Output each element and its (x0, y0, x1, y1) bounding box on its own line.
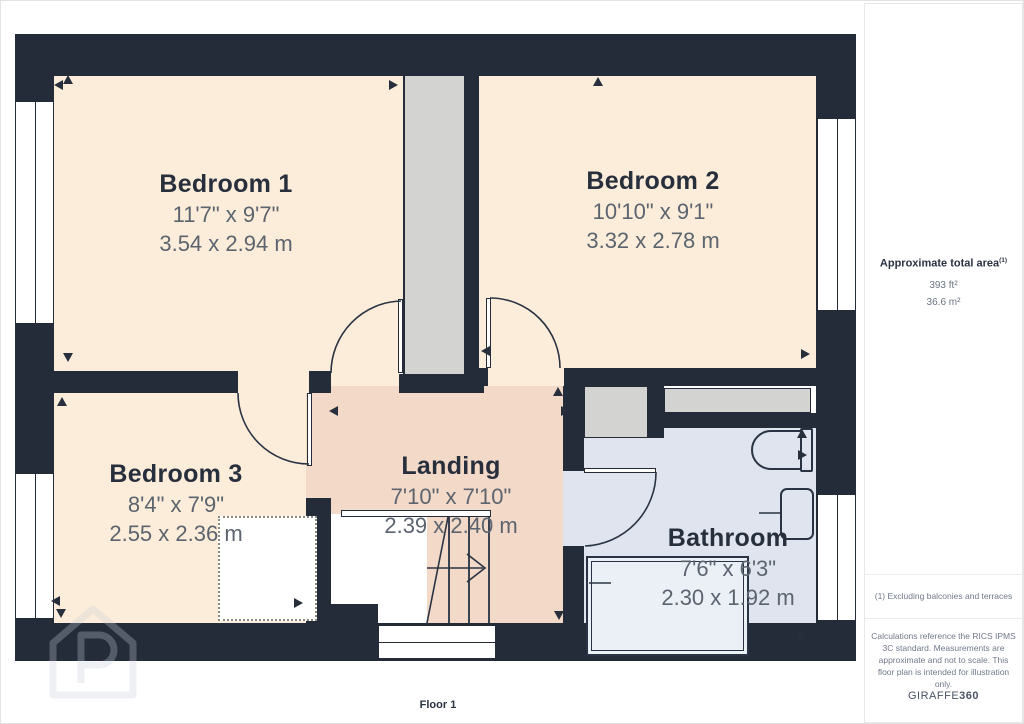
door-leaf-bedroom1 (398, 299, 403, 373)
door-leaf-bedroom2 (486, 298, 491, 368)
sink-icon (780, 488, 814, 540)
landing-floor (331, 386, 563, 514)
wall-cupboard-bottom (664, 413, 816, 428)
dim-arrow-bedroom2-up (593, 77, 603, 86)
dim-arrow-bathroom-up (797, 429, 807, 438)
approximate-total-area-title: Approximate total area(1) (865, 257, 1022, 270)
info-sidebar: Approximate total area(1) 393 ft² 36.6 m… (864, 3, 1023, 723)
footnote-exclusions: (1) Excluding balconies and terraces (871, 590, 1016, 602)
floor-label: Floor 1 (376, 699, 500, 711)
giraffe360-logo: GIRAFFE360 (865, 690, 1022, 702)
wall-cupboard-divider (648, 373, 664, 438)
area-value-ft: 393 ft² (865, 280, 1022, 291)
bedroom2-door-threshold (488, 368, 564, 386)
wall-stub-under-stairs (331, 604, 378, 661)
area-value-m: 36.6 m² (865, 297, 1022, 308)
dim-arrow-bedroom1-up (63, 75, 73, 84)
dim-arrow-bedroom2-left (481, 346, 490, 356)
floorplan-page: Bedroom 1 11'7" x 9'7" 3.54 x 2.94 m Bed… (0, 0, 1024, 724)
wall-landing-bathroom-lower (563, 546, 584, 623)
dim-arrow-bathroom-down (796, 633, 806, 642)
sidebar-divider (865, 574, 1022, 575)
dim-arrow-landing-down (554, 611, 564, 620)
wall-bedroom3-door-jamb (309, 371, 331, 393)
sidebar-divider (865, 618, 1022, 619)
stair-tread (488, 517, 490, 623)
stairs-handrail (341, 510, 491, 517)
area-title-text: Approximate total area (880, 258, 999, 270)
wall-bedroom1-bedroom3 (15, 371, 238, 393)
window-bedroom3-left (15, 473, 54, 619)
door-leaf-bedroom3 (307, 393, 312, 466)
dim-arrow-bathroom-right (798, 450, 807, 460)
dim-arrow-bedroom3-right (294, 598, 303, 608)
bedroom1-floor (54, 76, 403, 371)
cupboard-right (664, 388, 811, 413)
bedroom3-door-threshold (238, 371, 309, 393)
dim-arrow-bedroom3-up (57, 397, 67, 406)
window-bedroom2-right (817, 118, 856, 311)
window-bathroom-right (817, 494, 856, 621)
bedroom1-door-threshold (331, 371, 399, 386)
disclaimer-text: Calculations reference the RICS IPMS 3C … (871, 630, 1016, 690)
window-bottom (378, 625, 496, 659)
chimney-shaft (405, 76, 464, 376)
bedroom2-floor (479, 76, 816, 368)
wall-shaft-right (464, 76, 479, 386)
brand-prefix: GIRAFFE (908, 690, 959, 702)
dim-arrow-bedroom1-down (63, 353, 73, 362)
dim-arrow-bedroom3-down (56, 609, 66, 618)
dim-arrow-bedroom1-left (54, 80, 63, 90)
dim-arrow-bedroom1-right (389, 80, 398, 90)
wall-bedroom2-bottom (564, 368, 816, 386)
dim-arrow-landing-right (561, 406, 570, 416)
wall-shaft-left-line (403, 76, 405, 378)
stair-tread (468, 517, 470, 623)
cupboard-left (584, 386, 648, 438)
area-footnote-marker: (1) (999, 257, 1007, 264)
dim-arrow-bedroom3-left (51, 596, 60, 606)
bathroom-door-gap (563, 471, 584, 546)
wall-landing-bathroom-upper (563, 386, 584, 471)
wall-bedroom2-bottom-left (479, 368, 488, 386)
door-leaf-bathroom (584, 468, 656, 473)
wall-shaft-bottom (399, 374, 484, 393)
window-bedroom1-left (15, 101, 54, 324)
bathtub-inner (591, 561, 744, 651)
stair-tread (448, 517, 450, 623)
brand-suffix: 360 (959, 690, 979, 702)
dim-arrow-bedroom2-right (801, 349, 810, 359)
dim-arrow-landing-up (553, 387, 563, 396)
dim-arrow-landing-left (329, 406, 338, 416)
toilet-icon (751, 430, 803, 470)
wall-top (15, 34, 856, 76)
